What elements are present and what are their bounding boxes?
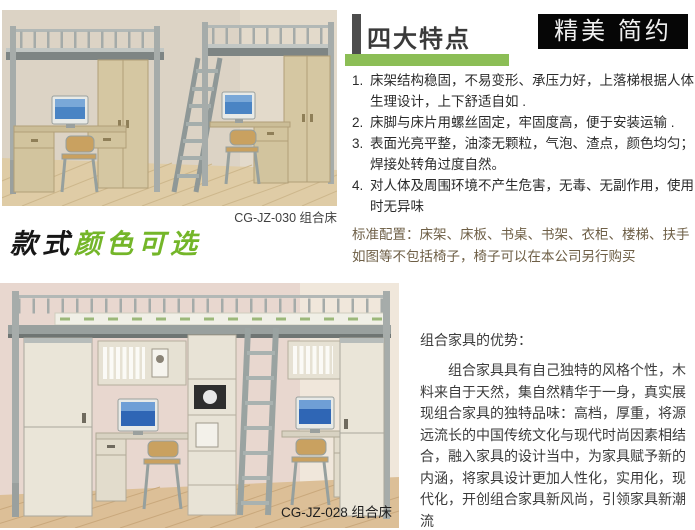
style-note-green: 颜色可选 [74,229,202,260]
features-ol: 床架结构稳固，不易变形、承压力好，上落梯根据人体生理设计，上下舒适自如 .床脚与… [352,70,694,217]
header-accent-bar [352,14,361,57]
advantages-title: 组合家具的优势： [420,330,532,350]
style-color-note: 款式颜色可选 [10,222,202,261]
standard-config-text: 标准配置：床架、床板、书桌、书架、衣柜、楼梯、扶手如图等不包括椅子，椅子可以在本… [352,224,693,268]
style-note-black: 款式 [10,229,74,260]
quality-badge: 精美 简约 [538,14,688,49]
feature-item: 对人体及周围环境不产生危害，无毒、无副作用，使用时无异味 [352,175,694,217]
loft-bed-illustration-030 [2,10,337,206]
header-green-underline [345,54,509,66]
product-photo-top [2,10,337,206]
features-title: 四大特点 [367,19,471,54]
loft-bed-illustration-028 [0,283,399,528]
feature-item: 床架结构稳固，不易变形、承压力好，上落梯根据人体生理设计，上下舒适自如 . [352,70,694,112]
features-list: 床架结构稳固，不易变形、承压力好，上落梯根据人体生理设计，上下舒适自如 .床脚与… [352,70,694,217]
feature-item: 床脚与床片用螺丝固定，牢固度高，便于安装运输 . [352,112,694,133]
product-photo-bottom: CG-JZ-028 组合床 [0,283,399,528]
product-caption-bottom: CG-JZ-028 组合床 [281,501,392,521]
advantages-body: 组合家具具有自己独特的风格个性，木料来自于天然，集自然精华于一身，真实展现组合家… [420,360,694,530]
product-page: CG-JZ-030 组合床 款式颜色可选 [0,0,695,530]
feature-item: 表面光亮平整，油漆无颗粒，气泡、渣点，颜色均匀；焊接处转角过度自然。 [352,133,694,175]
